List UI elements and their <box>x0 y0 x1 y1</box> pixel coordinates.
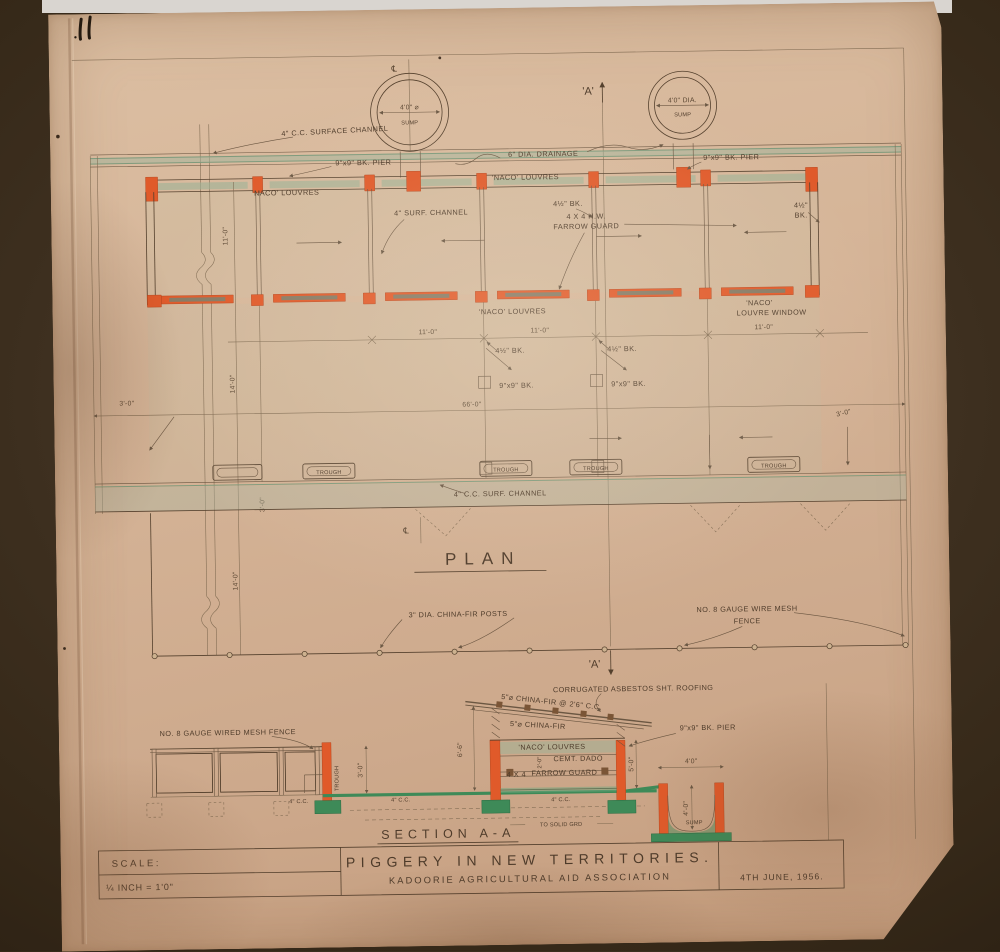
trough-label: TROUGH <box>493 467 519 473</box>
sheet-subtitle: KADOORIE AGRICULTURAL AID ASSOCIATION <box>389 872 671 886</box>
label-mesh-2: FENCE <box>734 616 761 625</box>
sump-right-dia: 4'0" DIA. <box>668 97 697 104</box>
label-guard-1: 4 X 4 <box>507 770 526 779</box>
label-bk9-b: 9"x9" BK. <box>611 379 646 389</box>
label-section-pier: 9"x9" BK. PIER <box>680 723 736 733</box>
dim-14-fence: 14'-0" <box>232 571 239 591</box>
enclosure-fence <box>150 502 909 659</box>
section-marker-a-bottom: 'A' <box>589 659 601 671</box>
sump-left-dia: 4'0" ⌀ <box>400 104 419 111</box>
fence-posts <box>152 642 908 658</box>
plan-title: PLAN <box>445 549 522 569</box>
label-cc-a: 4" C.C. <box>289 799 309 805</box>
label-bk45-edge-2: BK. <box>795 210 808 219</box>
dim-3-left: 3'-0" <box>119 400 134 407</box>
dim-sump-width: 4'0" <box>685 758 698 765</box>
label-cc-b: 4" C.C. <box>391 797 411 803</box>
label-window-2: LOUVRE WINDOW <box>737 307 807 317</box>
label-cc-c: 4" C.C. <box>551 797 571 803</box>
trough-label: TROUGH <box>761 463 787 469</box>
dim-wall-height: 6'-6" <box>457 742 464 757</box>
dim-dado-height: 2'-0" <box>537 756 543 768</box>
label-dado: CEMT. DADO <box>553 754 603 764</box>
sheet-date: 4TH JUNE, 1956. <box>740 871 824 882</box>
sump-right-label: SUMP <box>674 112 691 118</box>
dim-fence-height: 3'-0" <box>357 762 364 777</box>
scale-value: ¼ INCH = 1'0" <box>106 882 174 893</box>
label-china-fir-post: 5"⌀ CHINA-FIR <box>510 719 566 731</box>
label-drainage: 6" DIA. DRAINAGE <box>508 149 578 159</box>
dim-14-yard: 14'-0" <box>229 374 236 394</box>
dim-sump-depth: 4'-0" <box>683 800 690 815</box>
label-louvres-top: 'NACO' LOUVRES <box>252 188 319 198</box>
label-pier-right: 9"x9" BK. PIER <box>703 152 759 162</box>
label-china-fir-posts: 3" DIA. CHINA-FIR POSTS <box>409 609 508 619</box>
label-surface-channel-top: 4" C.C. SURFACE CHANNEL <box>281 124 388 138</box>
dim-pier-height: 5'-0" <box>628 756 635 771</box>
plan-title-group: ℄ PLAN <box>402 515 546 572</box>
centerline-top: ℄ <box>390 63 397 73</box>
label-surf-channel-pen: 4" SURF. CHANNEL <box>394 207 468 217</box>
drawing-sheet: 'A' 'A' <box>48 1 955 951</box>
label-section-trough: TROUGH <box>334 766 340 792</box>
label-farrow-1: 4 X 4 H.W. <box>566 211 606 221</box>
dim-11-depth: 11'-0" <box>222 226 229 245</box>
label-rafters: 5"⌀ CHINA-FIR @ 2'6" C.C. <box>501 692 603 712</box>
dim-11-b: 11'-0" <box>530 327 549 334</box>
dim-11-c: 11'-0" <box>754 324 773 331</box>
bottom-channel <box>95 472 907 541</box>
label-mesh-1: NO. 8 GAUGE WIRE MESH <box>696 604 797 614</box>
trough-label: TROUGH <box>316 470 342 476</box>
label-bk45-a: 4½" BK. <box>495 346 525 355</box>
title-block: SCALE: ¼ INCH = 1'0" PIGGERY IN NEW TERR… <box>99 840 845 899</box>
label-louvres-mid: 'NACO' LOUVRES <box>492 172 559 182</box>
dim-66: 66'-0" <box>462 401 482 408</box>
label-window-1: 'NACO' <box>746 298 773 307</box>
label-solid-grd: TO SOLID GRD <box>540 822 582 829</box>
sheet-title: PIGGERY IN NEW TERRITORIES. <box>346 849 714 870</box>
section-marker-a-top: 'A' <box>582 86 594 98</box>
sump-left-label: SUMP <box>401 120 418 126</box>
label-bk45-edge-1: 4½" <box>794 200 808 209</box>
label-section-fence: NO. 8 GAUGE WIRED MESH FENCE <box>160 727 296 738</box>
section-sump: 4'0" 4'-0" SUMP <box>650 758 731 842</box>
scale-label: SCALE: <box>112 858 162 870</box>
piggery-drawing: 'A' 'A' <box>48 1 955 951</box>
label-bk45-b: 4½" BK. <box>607 344 637 353</box>
label-section-louvres: 'NACO' LOUVRES <box>518 742 585 752</box>
dim-3-right: 3'-0" <box>836 408 852 418</box>
dim-11-a: 11'-0" <box>418 329 437 336</box>
section-drawing: NO. 8 GAUGE WIRED MESH FENCE TROUGH 3'-0… <box>145 683 737 850</box>
label-section-sump: SUMP <box>686 820 703 826</box>
section-title-group: SECTION A-A <box>377 826 518 844</box>
pen-floor-wash <box>146 182 820 299</box>
label-bk45-top: 4½" BK. <box>553 199 583 208</box>
section-title: SECTION A-A <box>381 826 515 842</box>
label-roofing: CORRUGATED ASBESTOS SHT. ROOFING <box>553 683 714 694</box>
label-surf-channel-btm: 4" C.C. SURF. CHANNEL <box>454 488 547 498</box>
label-farrow-2: FARROW GUARD <box>553 221 619 231</box>
centerline-bottom: ℄ <box>402 525 409 535</box>
label-bk9-a: 9"x9" BK. <box>499 381 534 391</box>
trough-label: TROUGH <box>583 466 609 472</box>
label-pier-left: 9"x9" BK. PIER <box>335 158 391 168</box>
label-louvres-pen: 'NACO' LOUVRES <box>479 306 546 316</box>
plan-drawing: 'A' 'A' <box>89 52 909 682</box>
label-guard-2: FARROW GUARD <box>531 768 597 778</box>
